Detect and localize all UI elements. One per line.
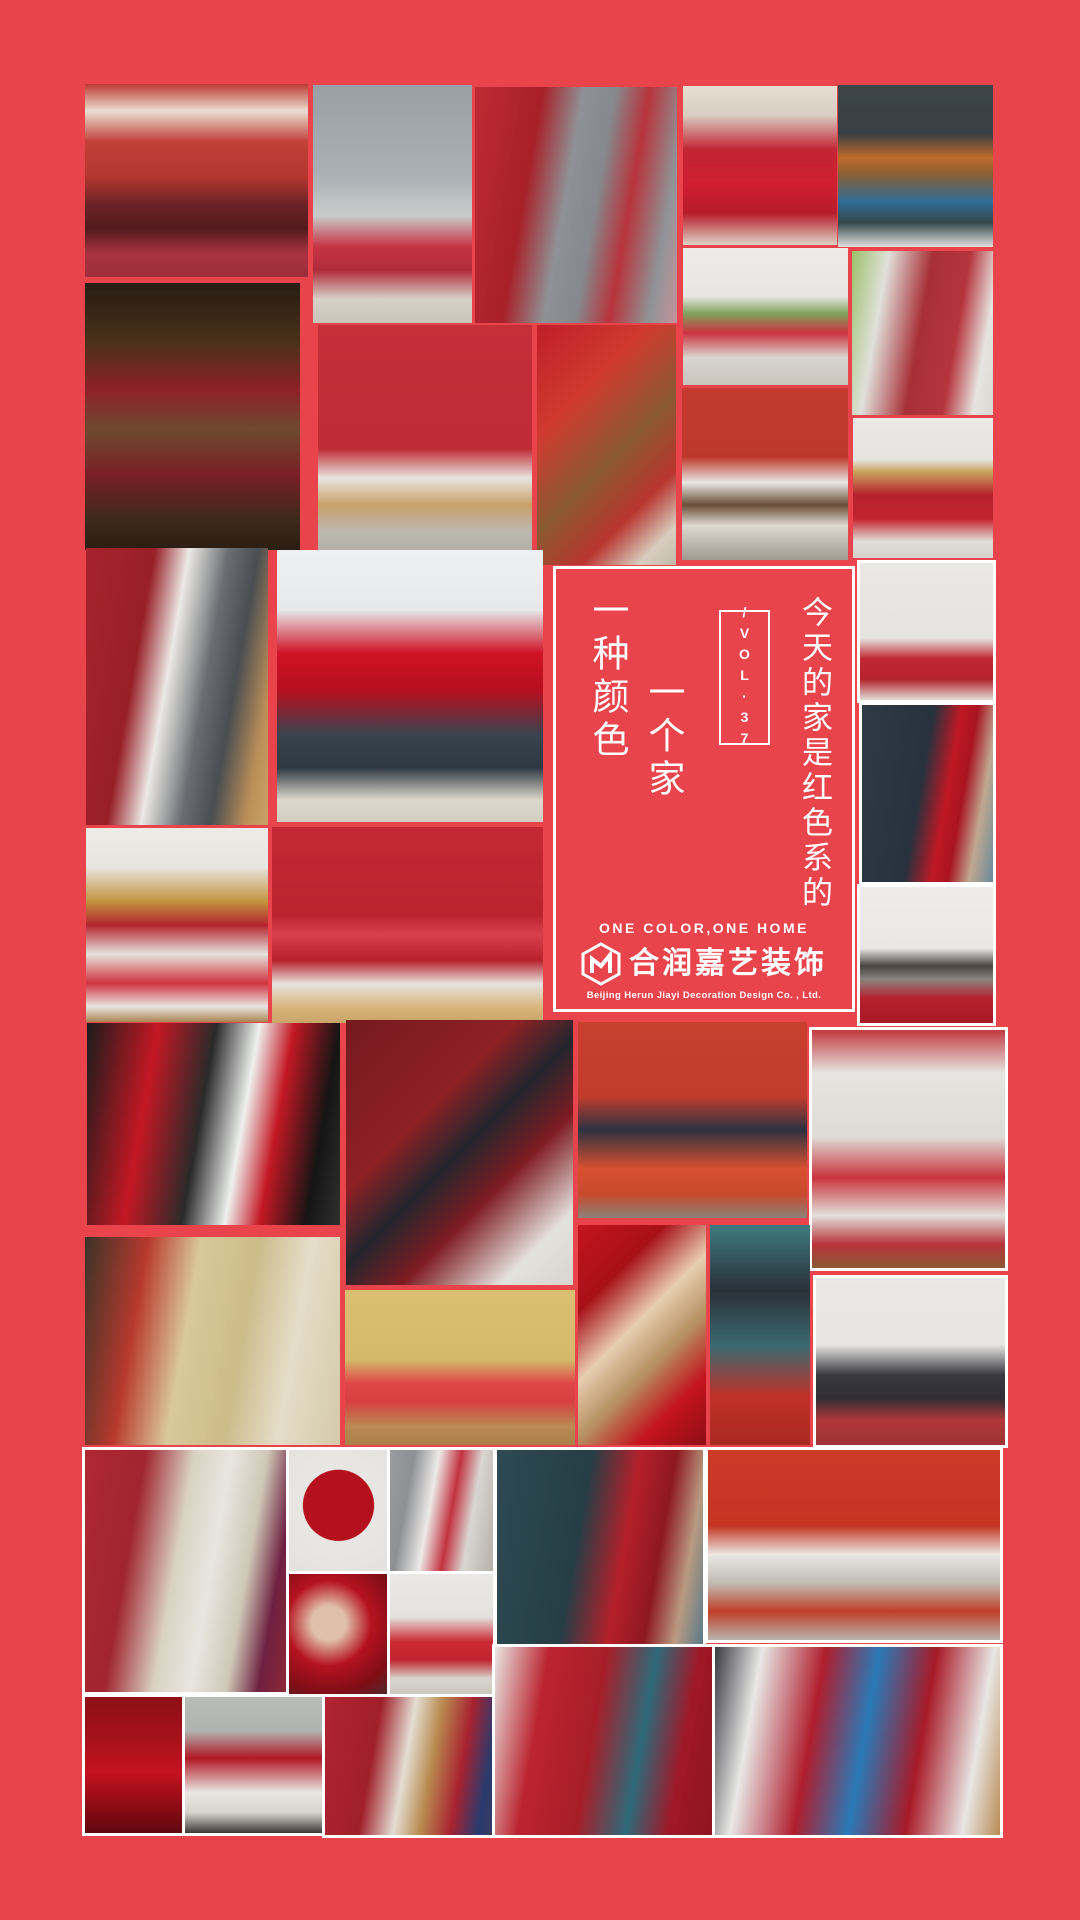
photo-nursery-red-dashed-wall bbox=[860, 563, 993, 700]
photo-red-blue-apartment bbox=[715, 1647, 1000, 1835]
photo-collage bbox=[0, 0, 1080, 1920]
volume-number: /VOL·37 bbox=[737, 604, 753, 751]
volume-badge: /VOL·37 bbox=[719, 610, 770, 745]
photo-gallery-wall-orange-sofa bbox=[578, 1022, 807, 1218]
photo-woman-red-gown bbox=[85, 1697, 183, 1833]
photo-red-staircase-hall bbox=[537, 325, 676, 565]
photo-gray-room-dark-sofa bbox=[816, 1278, 1005, 1445]
photo-red-fridge-kitchen bbox=[277, 550, 543, 822]
photo-woman-red-lace-dress bbox=[683, 86, 837, 245]
photo-rustic-beam-living-room bbox=[85, 283, 300, 550]
photo-red-sofa-floral-curtains bbox=[390, 1574, 493, 1697]
center-frame: 一种颜色 一个家 /VOL·37 今天的家是红色系的 ONE COLOR,ONE… bbox=[553, 566, 855, 1012]
photo-red-chesterfield-firehose bbox=[862, 705, 993, 882]
brand-logo-row: 合润嘉艺装饰 bbox=[556, 942, 852, 986]
photo-beige-living-room-fireplace bbox=[85, 1237, 340, 1445]
photo-red-kitchen-black-tiles bbox=[87, 1023, 340, 1225]
photo-red-bedspread-bedroom bbox=[853, 418, 993, 558]
photo-red-bedroom-white-dresser bbox=[852, 251, 993, 415]
photo-white-shelf-red-decor bbox=[86, 828, 268, 1022]
photo-red-tv-wall-unit bbox=[682, 388, 848, 560]
photo-teal-room-blue-chair bbox=[838, 85, 993, 247]
photo-white-room-red-sofa bbox=[683, 248, 848, 385]
photo-red-wall-neon-squares bbox=[272, 827, 543, 1023]
photo-woman-red-hood-portrait bbox=[578, 1225, 706, 1445]
herun-hexagon-logo-icon bbox=[581, 942, 621, 986]
photo-gray-room-red-daybed bbox=[313, 85, 472, 323]
photo-yellow-wall-red-sofa bbox=[345, 1290, 575, 1445]
slogan-one-color: 一种颜色 bbox=[580, 591, 634, 763]
photo-red-curtain-living-room bbox=[85, 84, 308, 277]
photo-guitar-wall-red-room bbox=[325, 1697, 492, 1835]
brand-tagline: ONE COLOR,ONE HOME bbox=[556, 920, 852, 936]
photo-teal-wall-red-chesterfield bbox=[497, 1450, 703, 1645]
photo-rose-petal-bath bbox=[289, 1450, 388, 1573]
photo-bedroom-red-curtain-divider bbox=[86, 548, 268, 825]
brand-name: 合润嘉艺装饰 bbox=[629, 949, 827, 979]
red-home-poster: 一种颜色 一个家 /VOL·37 今天的家是红色系的 ONE COLOR,ONE… bbox=[0, 0, 1080, 1920]
photo-woman-red-tulle-portrait bbox=[289, 1574, 388, 1697]
brand-subtitle: Beijing Herun Jiayi Decoration Design Co… bbox=[556, 990, 852, 1001]
photo-red-floral-wallpaper-room bbox=[85, 1450, 287, 1692]
photo-red-gray-wallpaper-room bbox=[475, 87, 677, 323]
photo-big-red-tv-wall-living bbox=[708, 1450, 1000, 1640]
photo-white-red-dresser-mirrors bbox=[812, 1030, 1005, 1268]
slogan-one-home: 一个家 bbox=[636, 673, 690, 802]
photo-gray-curtain-living-room bbox=[390, 1450, 493, 1573]
headline-vertical: 今天的家是红色系的 bbox=[792, 596, 837, 911]
photo-teal-bookshelf-red-armchair bbox=[710, 1225, 810, 1445]
photo-white-dining-red-rug bbox=[860, 887, 993, 1023]
photo-red-salon-drip-art bbox=[495, 1647, 713, 1835]
brand-block: ONE COLOR,ONE HOME 合润嘉艺装饰 Beijing Herun … bbox=[556, 920, 852, 1001]
photo-dark-red-shelves-bedroom bbox=[346, 1020, 573, 1285]
photo-red-art-white-armchairs bbox=[185, 1697, 322, 1833]
photo-red-wall-pendant-chair bbox=[318, 325, 532, 550]
